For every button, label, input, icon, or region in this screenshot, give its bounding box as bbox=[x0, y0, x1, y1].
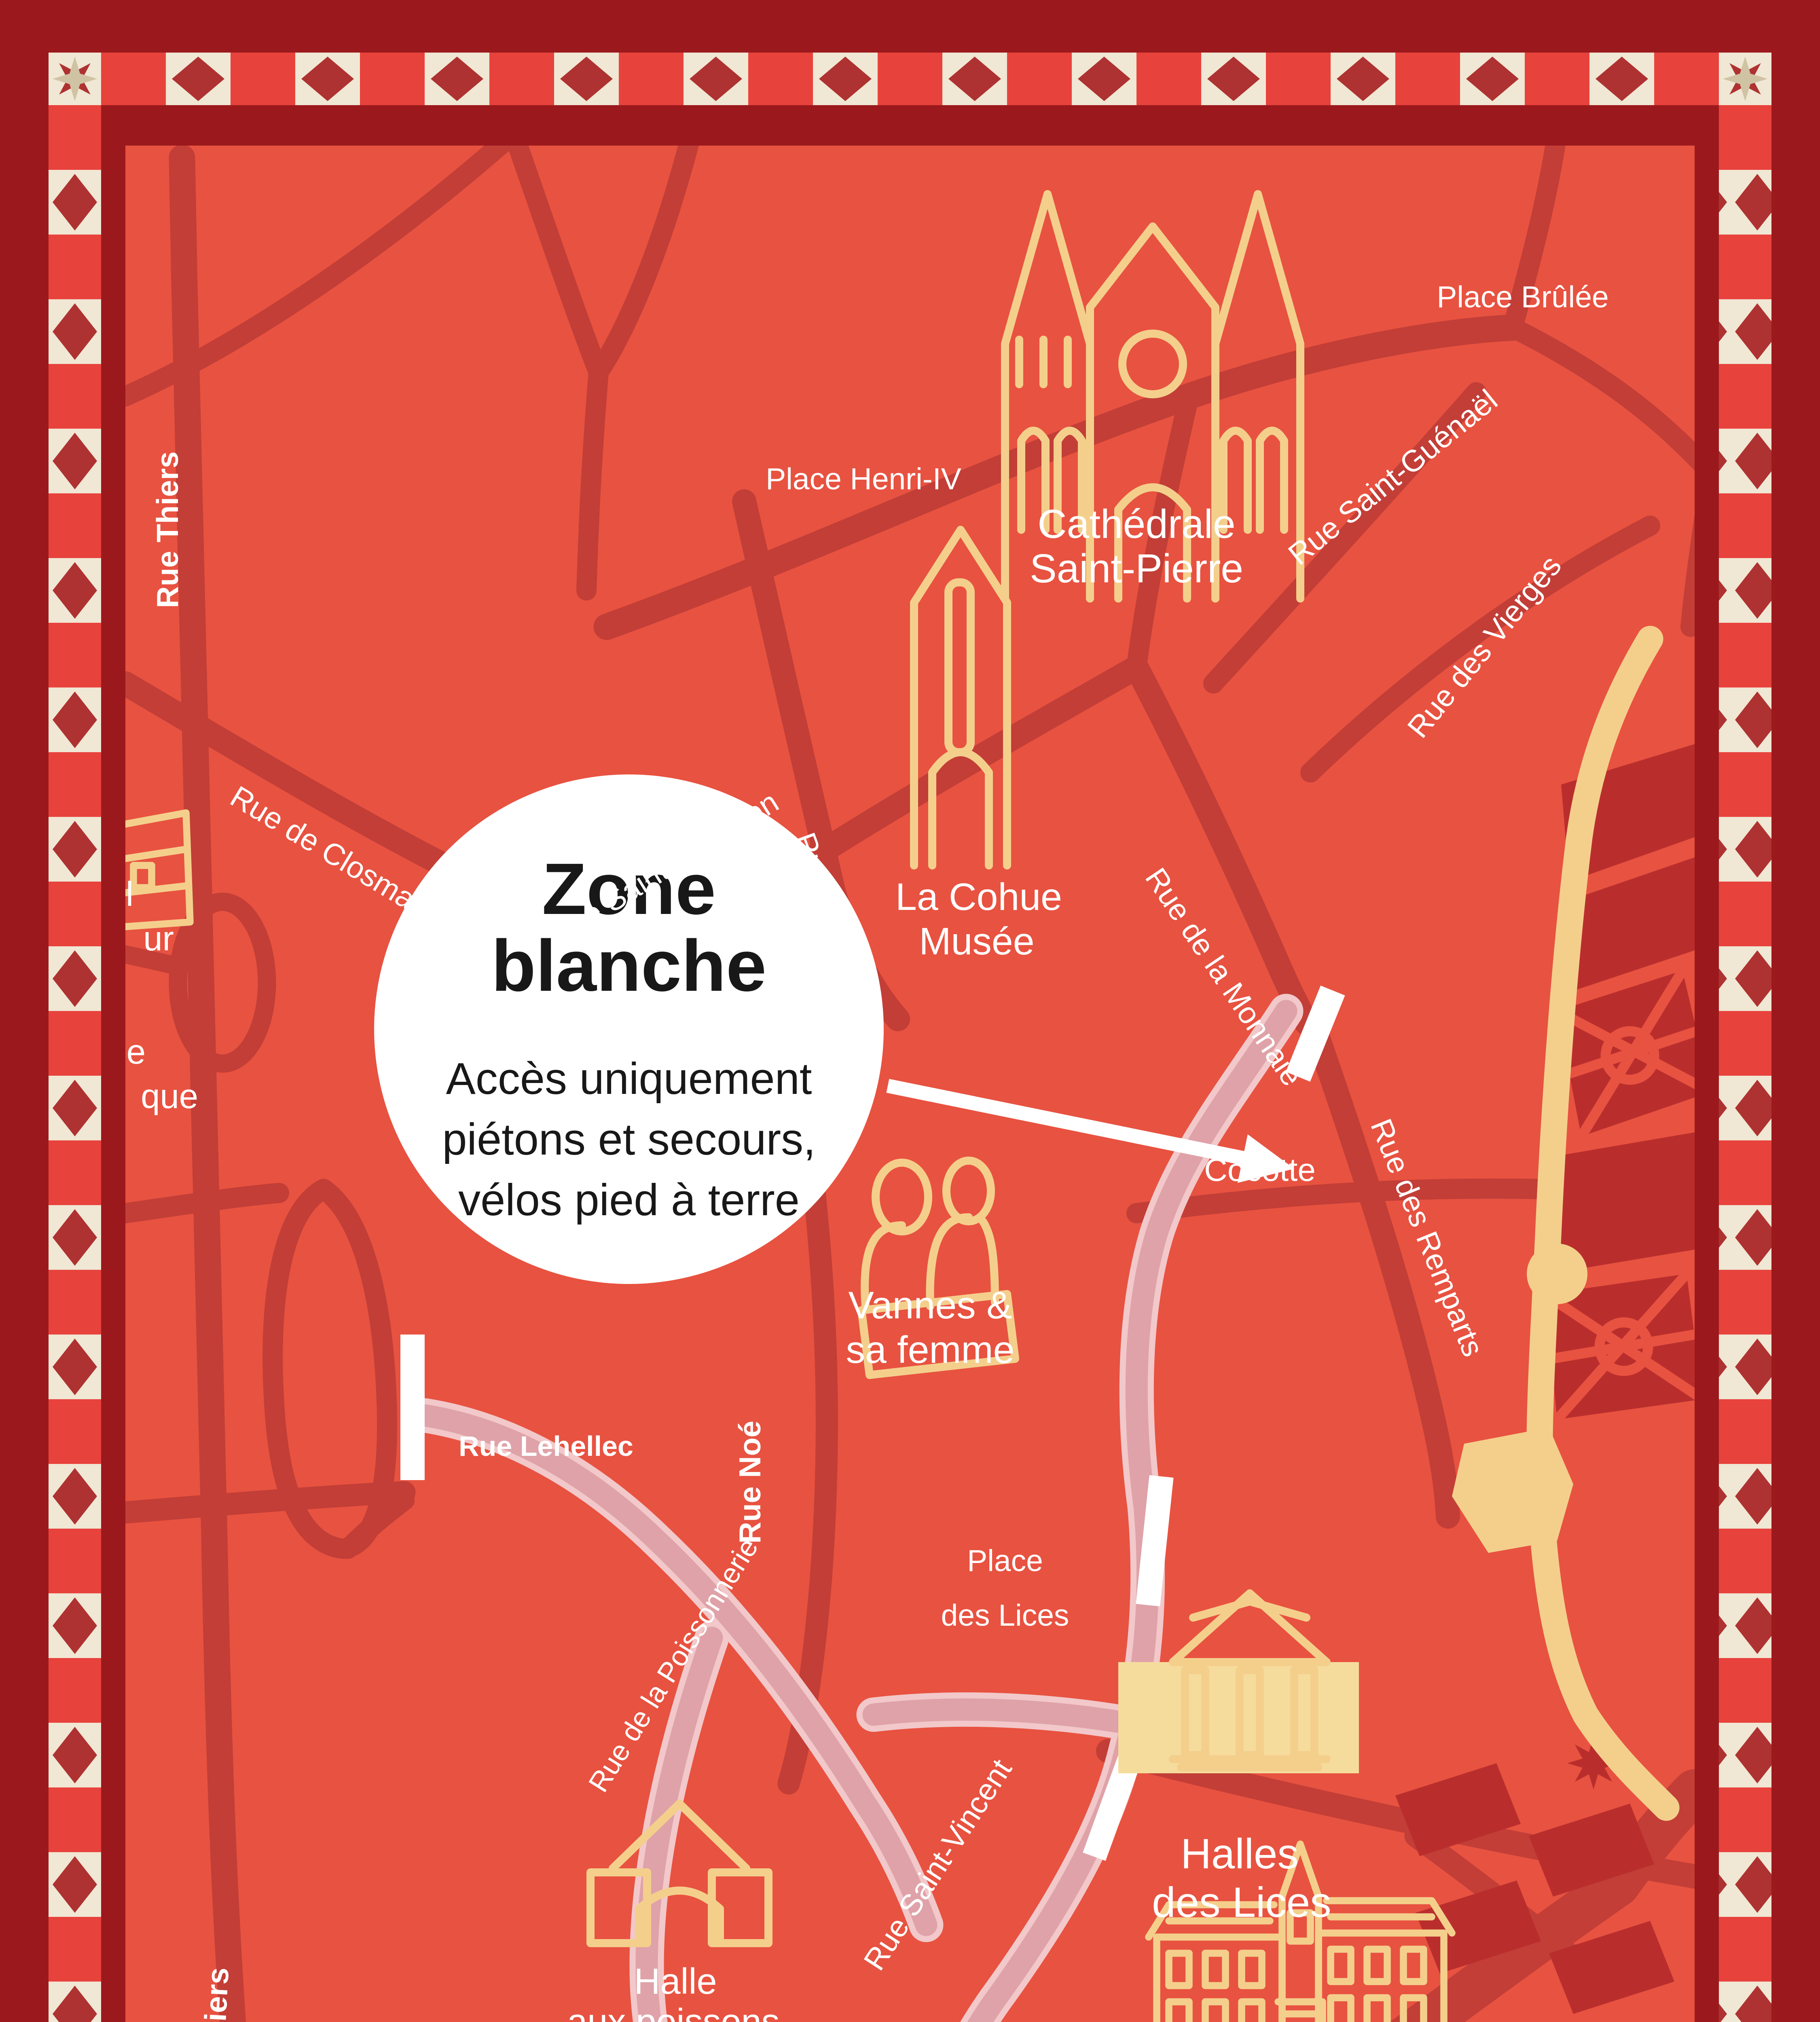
halle-poissons-label: Halle bbox=[634, 1961, 717, 2002]
rue-lehellec-label: Rue Lehellec bbox=[459, 1430, 633, 1462]
halles-des-lices-label: des Lices bbox=[1152, 1879, 1331, 1926]
zone-body: vélos pied à terre bbox=[458, 1175, 800, 1225]
zone-title: blanche bbox=[491, 925, 766, 1007]
zone-body: Accès uniquement bbox=[446, 1054, 812, 1104]
rue-thiers-label: Rue Thiers bbox=[150, 451, 184, 608]
vannes-femme-label: Vannes & bbox=[849, 1284, 1012, 1327]
edge-fragment-label: que bbox=[141, 1077, 198, 1116]
edge-fragment-label: l bbox=[126, 875, 133, 914]
place-des-lices-label: Place bbox=[967, 1544, 1043, 1578]
edge-fragment-label: ur bbox=[143, 920, 174, 958]
cathedrale-label: Cathédrale bbox=[1037, 501, 1235, 547]
la-cohue-label: La Cohue bbox=[895, 876, 1062, 918]
vannes-map-poster: Zone blanche Accès uniquement piétons et… bbox=[0, 0, 1820, 2022]
border-band-top bbox=[101, 53, 1719, 105]
zone-body: piétons et secours, bbox=[442, 1115, 815, 1164]
place-henri-iv-label: Place Henri-IV bbox=[766, 462, 961, 496]
edge-fragment-label: e bbox=[127, 1033, 146, 1071]
barrier-lehellec bbox=[400, 1335, 425, 1480]
border-band-right bbox=[1719, 105, 1771, 2022]
place-des-lices-label: des Lices bbox=[941, 1598, 1069, 1632]
halle-poissons-label: aux poissons bbox=[567, 2002, 779, 2022]
la-cohue-label: Musée bbox=[919, 920, 1034, 963]
border-band-left bbox=[49, 105, 101, 2022]
map-canvas: Zone blanche Accès uniquement piétons et… bbox=[0, 0, 1820, 2022]
halles-des-lices-label: Halles bbox=[1181, 1830, 1299, 1878]
cocotte-label: Cocotte bbox=[1204, 1152, 1316, 1188]
rue-noe-label: Rue Noé bbox=[733, 1421, 767, 1544]
place-brulee-label: Place Brûlée bbox=[1437, 280, 1608, 314]
cathedrale-label: Saint-Pierre bbox=[1030, 546, 1243, 591]
vannes-femme-label: sa femme bbox=[846, 1328, 1014, 1371]
